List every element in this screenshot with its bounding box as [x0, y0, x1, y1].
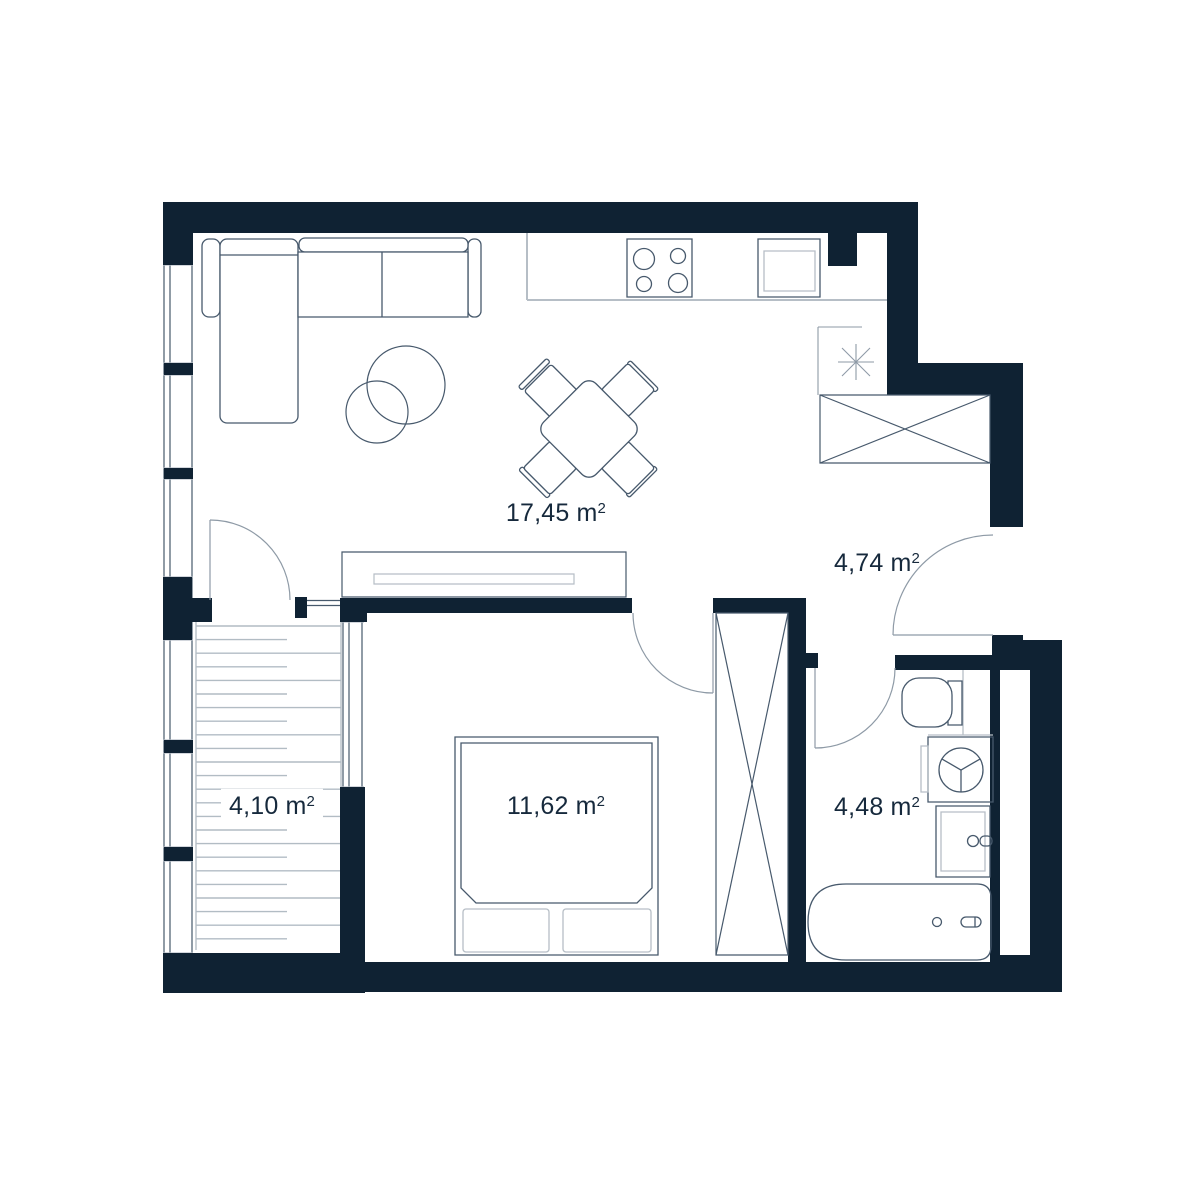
bathtub: [808, 884, 991, 960]
washing-machine: [921, 735, 993, 802]
balcony-decking: [196, 622, 341, 950]
sofa: [202, 238, 481, 423]
floor-plan-drawing: [0, 0, 1200, 1200]
bed: [455, 737, 658, 955]
window-bedroom-balcony: [341, 613, 364, 787]
bathroom-door: [815, 668, 895, 748]
stove: [627, 239, 692, 297]
heater-asterisk-icon: [838, 344, 874, 380]
bedroom-wardrobe: [716, 613, 788, 955]
tv-sideboard: [342, 552, 626, 597]
water-heater: [818, 327, 874, 395]
room-label-balcony: 4,10m2: [221, 789, 323, 823]
bedroom-door: [633, 613, 713, 693]
dining-set: [518, 358, 658, 498]
room-label-bathroom: 4,48m2: [834, 794, 920, 820]
balcony-door: [210, 520, 290, 600]
hallway-wardrobe: [820, 395, 990, 463]
rug: [346, 346, 445, 443]
room-label-living-kitchen: 17,45m2: [506, 500, 606, 526]
room-label-bedroom: 11,62m2: [507, 793, 605, 819]
kitchen-sink: [758, 239, 820, 297]
toilet: [902, 670, 963, 735]
floor-plan: 17,45m2 4,74m2 4,10m2 11,62m2 4,48m2: [0, 0, 1200, 1200]
room-label-hallway: 4,74m2: [834, 550, 920, 576]
bathroom-sink: [936, 806, 992, 877]
